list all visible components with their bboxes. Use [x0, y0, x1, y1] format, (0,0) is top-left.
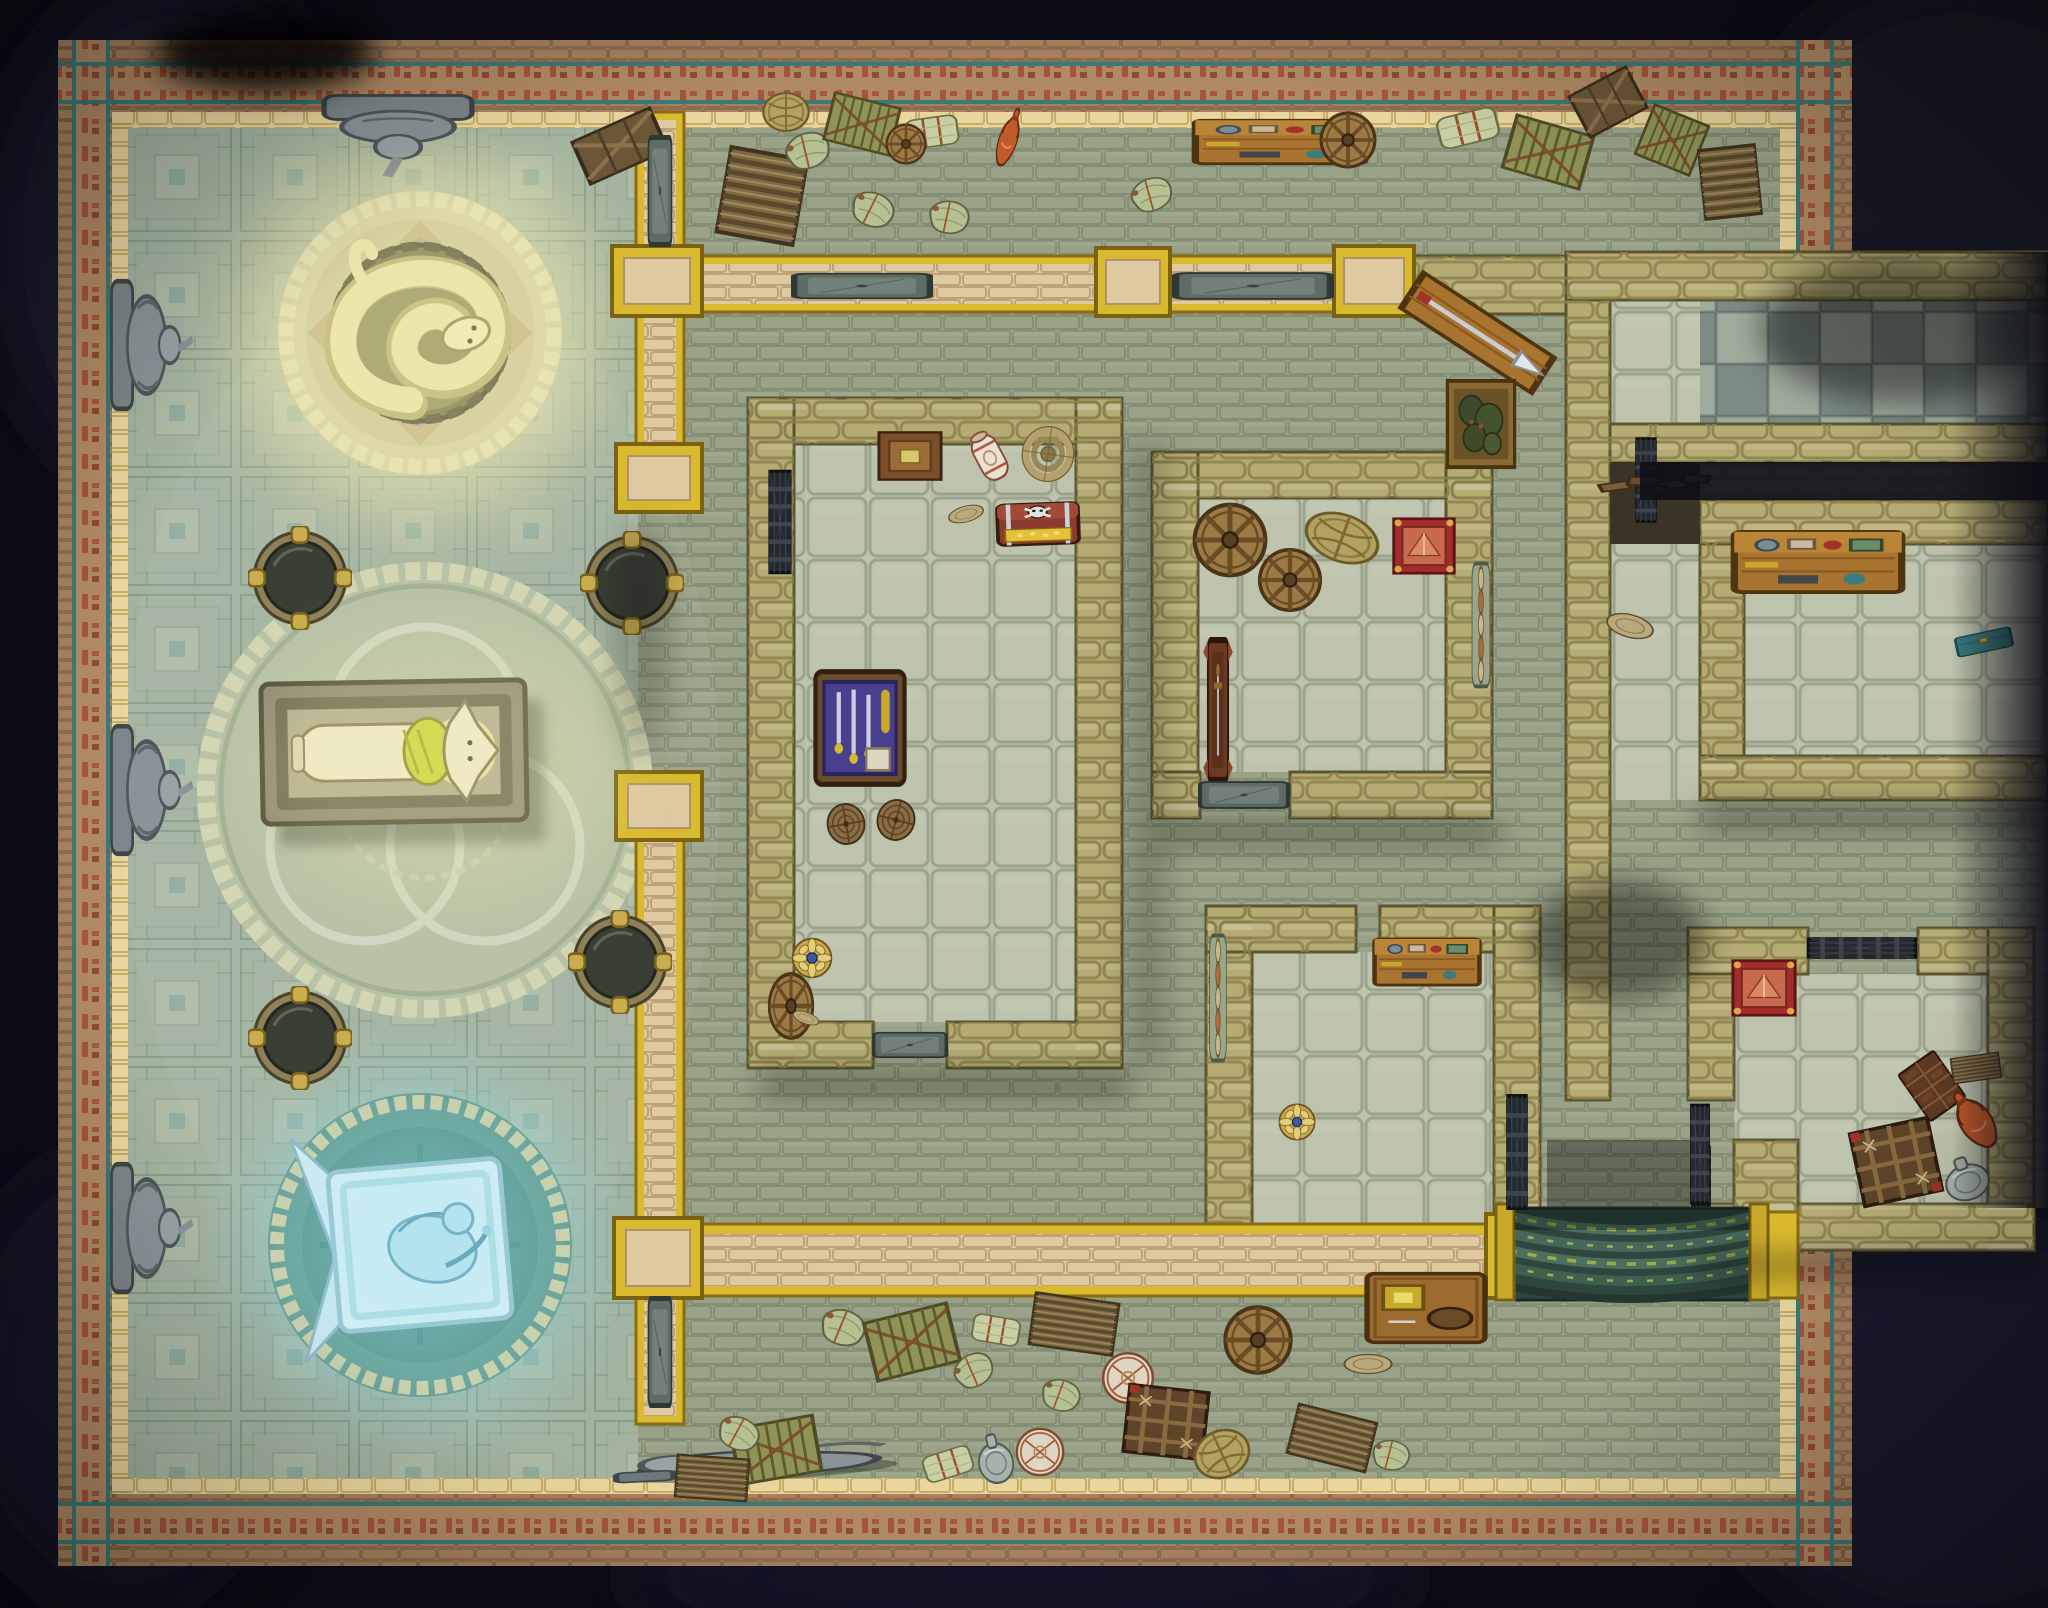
battlemap-svg [0, 0, 2048, 1608]
battlemap-stage [0, 0, 2048, 1608]
vignette [0, 0, 2048, 1608]
